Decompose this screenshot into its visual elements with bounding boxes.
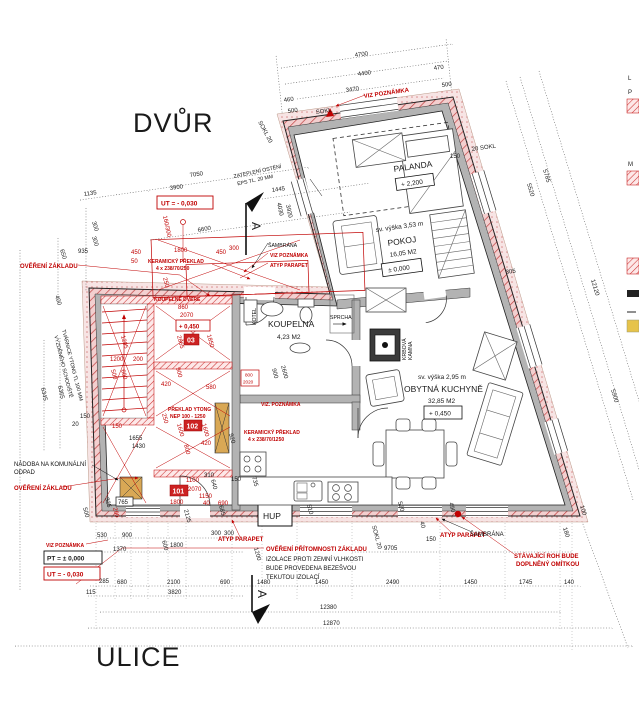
- krbova-kamna-label2: KAMNA: [408, 341, 414, 360]
- dim-label: 2070: [180, 313, 194, 319]
- dim-label: 5520: [525, 183, 535, 198]
- dim-label: 420: [161, 382, 172, 388]
- dim-label: 200: [133, 357, 144, 363]
- door-size: 800: [245, 373, 253, 378]
- dim-label: 600: [160, 540, 169, 552]
- dim-label: 690: [218, 501, 229, 507]
- izolace-3: TEKUTOU IZOLACÍ: [266, 574, 320, 581]
- dim-label: 300: [90, 236, 99, 248]
- dim-label: 300: [229, 246, 240, 252]
- dim-label: 20: [72, 422, 79, 428]
- keramicky-preklad-2-size: 4 x 238/70/1250: [248, 437, 284, 443]
- legend-item: P: [628, 90, 632, 96]
- dim-label: 450: [216, 250, 227, 256]
- dim-label: 5785: [541, 169, 551, 184]
- kuchyne-area: 32,85 M2: [428, 398, 455, 405]
- legend-item: L: [628, 76, 632, 82]
- dim-label: 530: [97, 533, 108, 539]
- legend-stubs: L P M: [627, 76, 639, 332]
- dim-label: 4400: [357, 70, 372, 78]
- overeni-zakladu-bottom: OVĚŘENÍ ZÁKLADU: [14, 484, 72, 492]
- room-number: 102: [187, 424, 199, 431]
- armchair: [365, 369, 404, 406]
- koupelna-label: KOUPELNA: [268, 319, 315, 329]
- chimney-shaft: [215, 403, 229, 453]
- dim-label: 12120: [589, 279, 600, 297]
- wall-red-mid3: [154, 470, 232, 477]
- dim-label: 1135: [83, 190, 97, 198]
- dim-label: 1800: [174, 248, 188, 254]
- window-bottom-3: [466, 506, 508, 517]
- street-label: ULICE: [96, 642, 181, 672]
- dim-label: 420: [201, 441, 212, 447]
- dim-label: 300: [90, 221, 99, 233]
- dim-label: 1480: [257, 580, 271, 586]
- ut-level-bottom: UT = - 0,030: [47, 572, 84, 579]
- dim-label: 150: [112, 424, 123, 430]
- keramicky-preklad-1-size: 4 x 238/70/250: [156, 266, 190, 272]
- overeni-pritomnosti: OVĚŘENÍ PŘÍTOMNOSTI ZÁKLADU: [266, 545, 367, 553]
- dim-label: 4030: [275, 202, 284, 217]
- preklad-ytong: PŘEKLAD YTONG: [168, 405, 211, 413]
- section-letter: A: [255, 590, 269, 598]
- stavajici-roh-2: DOPLNĚNÝ OMÍTKOU: [516, 560, 579, 568]
- dim-label: 1430: [132, 444, 146, 450]
- section-marker-top: A: [246, 192, 264, 255]
- dim-label: 50: [131, 259, 138, 265]
- dim-label: 3920: [284, 204, 293, 219]
- dim-label: 160/300: [161, 215, 172, 238]
- dim-label: 450: [131, 250, 142, 256]
- dim-label: 305: [505, 269, 516, 276]
- dim-label: 1450: [315, 580, 329, 586]
- pt-level: PT = ± 0,000: [47, 556, 85, 563]
- koupelna-area: 4,23 M2: [277, 334, 301, 341]
- dim-label: 1655: [129, 436, 143, 442]
- window-old-bottom: [126, 507, 160, 517]
- dim-label: 310: [204, 473, 215, 479]
- wall-red-mid1: [101, 418, 154, 425]
- dim-label: 1150: [199, 494, 213, 500]
- dim-label: 500: [81, 507, 90, 519]
- atyp-parapet-bottom1: ATYP PARAPET: [218, 537, 264, 543]
- door-size: 2020: [243, 380, 254, 385]
- kuchyne-label: OBYTNÁ KUCHYNĚ: [404, 384, 483, 394]
- dim-label: 2070: [188, 487, 202, 493]
- sambrana-entry: ŠAMBRÁNA: [268, 242, 298, 249]
- dim-label: 1800: [170, 543, 184, 549]
- dim-label: 5900: [609, 389, 619, 404]
- dim-label: 150: [450, 154, 461, 160]
- keramicky-preklad-1: KERAMICKÝ PŘEKLAD: [148, 257, 204, 265]
- dim-label: 900: [122, 533, 133, 539]
- dim-label: 285: [99, 579, 110, 585]
- dim-label: 1450: [464, 580, 478, 586]
- koupelne-dvere: KOUPELNĚ DVEŘE: [154, 295, 201, 303]
- dim-label: SOKL 20: [370, 525, 382, 550]
- dim-label: 3900: [169, 184, 184, 192]
- dim-label: 6600: [197, 226, 212, 234]
- fireplace: [370, 329, 400, 361]
- kotel-label: KOTEL: [252, 308, 258, 325]
- dim-label: 860: [178, 305, 189, 311]
- dim-label: 300: [224, 531, 235, 537]
- krbova-kamna-label: KRBOVÁ: [401, 338, 408, 360]
- overeni-zakladu-top: OVĚŘENÍ ZÁKLADU: [20, 262, 78, 270]
- atyp-parapet-entry: ATYP PARAPET: [270, 263, 308, 269]
- viz-poznamka-mid: VIZ. POZNÁMKA: [261, 401, 301, 408]
- hup-label: HUP: [263, 511, 281, 521]
- kuchyne-level: + 0,450: [429, 411, 451, 418]
- izolace-1: IZOLACE PROTI ZEMNÍ VLHKOSTI: [266, 556, 364, 563]
- dim-label: 500: [441, 82, 452, 89]
- keramicky-preklad-2: KERAMICKÝ PŘEKLAD: [244, 428, 300, 436]
- dim-label: 2490: [386, 580, 400, 586]
- yard-label: DVŮR: [133, 106, 214, 138]
- wall-red-stair: [147, 304, 154, 418]
- room-number: 101: [173, 489, 185, 496]
- dim-label: 1200: [252, 547, 261, 562]
- dim-label: 1745: [519, 580, 533, 586]
- dim-label: 40: [418, 521, 426, 530]
- wall-red-mid2: [154, 362, 232, 369]
- dim-label: 115: [86, 590, 96, 596]
- dim-label: 150: [80, 414, 91, 420]
- ut-level-top: UT = - 0,030: [161, 201, 198, 208]
- dim-label: 935: [78, 249, 89, 255]
- dim-label: 7050: [189, 171, 204, 179]
- dim-label: 1370: [113, 547, 127, 553]
- dim-label: 40: [203, 501, 210, 507]
- dim-label: 9705: [384, 546, 398, 552]
- dim-label: 2100: [167, 580, 181, 586]
- dim-label: 6345: [39, 387, 48, 402]
- nadoba-1: NÁDOBA NA KOMUNÁLNÍ: [14, 461, 86, 468]
- dim-label: SOKL 20: [256, 120, 273, 145]
- sambrana-bottom: ŠAMBRÁNA: [470, 531, 504, 538]
- dim-label: 690: [220, 580, 231, 586]
- dim-label: 765: [118, 500, 129, 506]
- nadoba-2: ODPAD: [14, 470, 36, 476]
- dim-label: 3470: [345, 86, 360, 94]
- dim-label: 680: [117, 580, 128, 586]
- dim-label: 650: [58, 249, 67, 261]
- sprcha-label: SPRCHA: [330, 315, 352, 321]
- viz-poznamka-left: VIZ POZNÁMKA: [46, 542, 84, 549]
- dim-label: 1445: [271, 186, 286, 194]
- floor-plan-drawing: A A L P M DVŮR ULICE PALANDA + 2,200 sv.…: [0, 0, 639, 719]
- dim-label: 300: [211, 531, 222, 537]
- legend-item: M: [628, 162, 633, 168]
- dim-label: 12870: [323, 621, 340, 627]
- dim-label: 460: [283, 97, 294, 104]
- dim-label: 150: [231, 477, 242, 483]
- viz-poznamka-entry: VIZ POZNÁMKA: [270, 252, 308, 259]
- waste-container: [120, 477, 142, 499]
- kuchyne-height: sv. výška 2,95 m: [418, 374, 466, 381]
- sofa-pokoj: [333, 215, 384, 275]
- dim-label: 3820: [168, 590, 182, 596]
- dim-label: 12380: [320, 605, 337, 611]
- dim-label: 470: [433, 65, 444, 72]
- dim-label: 150: [426, 537, 437, 543]
- section-letter: A: [249, 222, 263, 230]
- plus450-box: + 0,450: [179, 325, 200, 331]
- dim-label: 1200: [110, 357, 124, 363]
- dim-label: 400: [53, 295, 62, 307]
- dim-label: 4700: [354, 51, 369, 59]
- dim-label: 1800: [170, 500, 184, 506]
- wall-stub-kitchen: [352, 402, 360, 430]
- dim-label: 140: [564, 580, 575, 586]
- stavajici-roh-1: STÁVAJÍCÍ ROH BUDE: [514, 552, 579, 560]
- izolace-2: BUDE PROVEDENA BEZEŠVOU: [266, 565, 356, 572]
- dim-label: 1100: [186, 478, 200, 484]
- dim-label: 6365: [56, 385, 65, 400]
- dim-label: 580: [206, 385, 217, 391]
- preklad-ytong-size: NEP 100 - 1250: [170, 414, 206, 420]
- room-number: 03: [187, 338, 195, 345]
- floor-plan-page: A A L P M DVŮR ULICE PALANDA + 2,200 sv.…: [0, 0, 639, 719]
- dim-label: 180: [561, 527, 570, 539]
- cabinet-x-1: [366, 288, 406, 312]
